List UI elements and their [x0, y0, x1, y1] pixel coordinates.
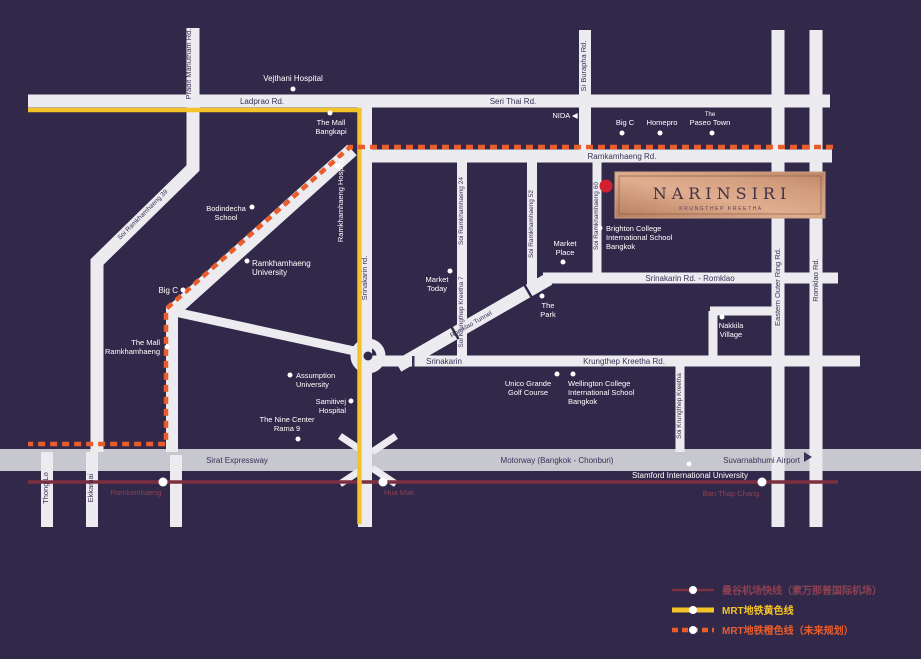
poi-big-c-west: Big C: [158, 286, 178, 295]
label-soi-ramkhamhaeng-24: Soi Ramkhamhaeng 24: [458, 177, 465, 245]
poi-wellington-2: International School: [568, 388, 635, 397]
poi-bodindecha-2: School: [215, 213, 238, 222]
poi-dot-the-park: [540, 294, 545, 299]
poi-dot-mall-ramkhamhaeng: [165, 345, 170, 350]
label-motorway: Motorway (Bangkok - Chonburi): [501, 456, 614, 465]
station-label-hua-mak: Hua Mak: [384, 488, 414, 497]
poi-dot-market-place: [561, 260, 566, 265]
poi-brighton-2: International School: [606, 233, 673, 242]
project-logo: NARINSIRI KRUNGTHEP KREETHA: [600, 172, 826, 218]
label-soi-ramkhamhaeng-60: Soi Ramkhamhaeng 60: [593, 182, 600, 250]
poi-dot-unico: [555, 372, 560, 377]
map-stage: Ramkamhaeng Hua Mak Ban Thap Chang Ladpr…: [0, 0, 921, 659]
label-pradit-manutham: Pradit Manutham Rd.: [184, 29, 193, 100]
poi-brighton-3: Bangkok: [606, 242, 635, 251]
poi-dot-mall-bangkapi: [328, 111, 333, 116]
label-thong-lo: Thong Lo: [41, 472, 50, 504]
poi-stamford: Stamford International University: [632, 471, 748, 480]
poi-market-place-2: Place: [556, 248, 575, 257]
poi-market-place-1: Market: [554, 239, 578, 248]
label-srinakarin-romklao: Srinakarin Rd. - Romklao: [645, 274, 735, 283]
label-soi-krungthep-kreetha-7: Soi Krungthep Kreetha 7: [458, 276, 465, 348]
poi-dot-assumption: [288, 373, 293, 378]
poi-dot-big-c-east: [620, 131, 625, 136]
poi-dot-big-c-west: [181, 288, 186, 293]
label-si-burapha: Si Burapha Rd.: [579, 41, 588, 92]
poi-dot-bodindecha: [250, 205, 255, 210]
legend-yellow-line-label: MRT地铁黄色线: [722, 604, 794, 617]
poi-ram-university-2: University: [252, 268, 287, 277]
poi-assumption-2: University: [296, 380, 329, 389]
poi-the-park-2: Park: [540, 310, 556, 319]
poi-brighton-1: Brighton College: [606, 224, 661, 233]
srinakarin-direction-tick: [412, 356, 415, 367]
station-dot-ban-thap-chang: [758, 478, 767, 487]
poi-bodindecha-1: Bodindecha: [206, 204, 246, 213]
poi-nakkila-2: Village: [720, 330, 742, 339]
label-ramkamhaeng-rd: Ramkamhaeng Rd.: [588, 152, 657, 161]
label-ladprao: Ladprao Rd.: [240, 97, 284, 106]
label-srinakarin-west: Srinakarin: [426, 357, 462, 366]
poi-mall-ram-1: The Mall: [131, 338, 160, 347]
station-dot-ramkamhaeng: [159, 478, 168, 487]
poi-nine-center-1: The Nine Center: [259, 415, 315, 424]
poi-dot-brighton: [598, 226, 603, 231]
poi-nakkila-1: Nakkila: [719, 321, 744, 330]
project-name: NARINSIRI: [653, 184, 792, 203]
poi-market-today-2: Today: [427, 284, 447, 293]
poi-dot-homepro: [658, 131, 663, 136]
poi-mall-bangkapi-2: Bangkapi: [315, 127, 347, 136]
poi-nida: NIDA ◀: [552, 111, 579, 120]
legend-yellow-line-dot: [689, 606, 697, 614]
legend-orange-line-dot: [689, 626, 697, 634]
poi-wellington-3: Bangkok: [568, 397, 597, 406]
label-ekkamai: Ekkamai: [86, 473, 95, 502]
station-dot-hua-mak: [379, 478, 388, 487]
poi-wellington-1: Wellington College: [568, 379, 630, 388]
station-label-ban-thap-chang: Ban Thap Chang: [703, 489, 760, 498]
project-subtitle: KRUNGTHEP KREETHA: [679, 206, 763, 212]
poi-samitivej-1: Samitivej: [316, 397, 347, 406]
poi-vejthani: Vejthani Hospital: [263, 74, 323, 83]
station-label-ramkamhaeng: Ramkamhaeng: [111, 488, 162, 497]
legend-orange-line-label: MRT地铁橙色线（未来规划）: [722, 624, 854, 637]
poi-homepro: Homepro: [647, 118, 678, 127]
project-location-dot: [600, 180, 613, 193]
poi-dot-ram-university: [245, 259, 250, 264]
poi-dot-vejthani: [291, 87, 296, 92]
poi-samitivej-2: Hospital: [319, 406, 346, 415]
poi-dot-paseo: [710, 131, 715, 136]
label-sirat-expressway: Sirat Expressway: [206, 456, 268, 465]
poi-unico-2: Golf Course: [508, 388, 548, 397]
poi-market-today-1: Market: [426, 275, 450, 284]
poi-mall-bangkapi-1: The Mall: [317, 118, 346, 127]
label-seri-thai: Seri Thai Rd.: [490, 97, 537, 106]
location-map: Ramkamhaeng Hua Mak Ban Thap Chang Ladpr…: [0, 0, 921, 659]
poi-ramkhamhaeng-hospital: Ramkhamhaeng Hospital: [336, 158, 345, 243]
legend-airport-link-dot: [689, 586, 697, 594]
poi-assumption-1: Assumption: [296, 371, 335, 380]
label-srinakarin-vertical: Srinakarin rd.: [360, 256, 369, 301]
label-soi-krungthep-kreetha: Soi Krungthep Kreetha: [676, 373, 683, 439]
poi-big-c-east: Big C: [616, 118, 635, 127]
label-romklao: Romklao Rd.: [811, 258, 820, 301]
label-soi-ramkhamhaeng-52: Soi Ramkhamhaeng 52: [528, 190, 535, 258]
poi-ram-university-1: Ramkhamhaeng: [252, 259, 311, 268]
legend-airport-link-label: 曼谷机场快线（素万那普国际机场）: [722, 584, 882, 597]
poi-unico-1: Unico Grande: [505, 379, 551, 388]
poi-the-park-1: The: [542, 301, 555, 310]
poi-paseo-2: Paseo Town: [690, 118, 731, 127]
poi-dot-nakkila: [720, 315, 725, 320]
label-krungthep-kreetha: Krungthep Kreetha Rd.: [583, 357, 665, 366]
poi-dot-nine-center: [296, 437, 301, 442]
poi-dot-market-today: [448, 269, 453, 274]
label-eastern-outer-ring: Eastern Outer Ring Rd.: [773, 248, 782, 326]
poi-dot-samitivej: [349, 399, 354, 404]
label-suvarnabhumi-airport: Suvarnabhumi Airport: [723, 456, 801, 465]
poi-dot-wellington: [571, 372, 576, 377]
poi-nine-center-2: Rama 9: [274, 424, 300, 433]
poi-mall-ram-2: Ramkhamhaeng: [105, 347, 160, 356]
poi-dot-stamford: [687, 462, 692, 467]
